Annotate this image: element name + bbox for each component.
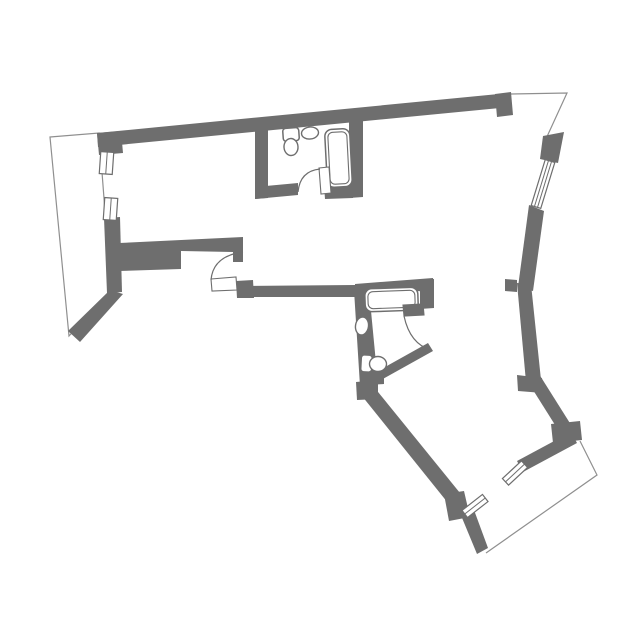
windows-layer [99, 152, 555, 518]
wall-window-block [540, 132, 564, 163]
floor-plan-page [0, 0, 644, 635]
window-right [531, 160, 555, 209]
wall-bedroom-west [362, 387, 460, 503]
door-bath1-swing-arc [298, 169, 320, 192]
floor-plan-drawing [0, 0, 644, 635]
toilet-bowl-bath1 [283, 138, 298, 156]
fixtures-layer [283, 126, 419, 372]
door-bath2 [403, 304, 431, 350]
thin-outlines-layer [50, 93, 597, 553]
toilet-bowl-bath2 [369, 356, 387, 372]
wall-right-mid [517, 283, 541, 382]
wall-hall-south [237, 285, 355, 297]
window-left-upper [99, 152, 114, 175]
window-bedroom-se [502, 461, 527, 485]
wall-left-band [119, 237, 243, 271]
door-hall-leaf [211, 277, 237, 291]
door-bath1-leaf [319, 167, 331, 194]
doors-layer [211, 167, 431, 350]
wall-left-diagonal [68, 290, 123, 342]
window-left-lower [103, 198, 118, 221]
sink-bath1 [301, 126, 319, 140]
walls-layer [68, 92, 582, 554]
wall-top-end-block [495, 92, 513, 117]
wall-right-upper [518, 205, 544, 291]
door-bath1 [298, 167, 331, 194]
wall-bedroom-tip [460, 510, 488, 554]
wall-top [97, 93, 510, 147]
window-right-frame [531, 160, 555, 209]
wall-right-step [505, 279, 517, 292]
door-bath2-leaf [403, 304, 424, 316]
